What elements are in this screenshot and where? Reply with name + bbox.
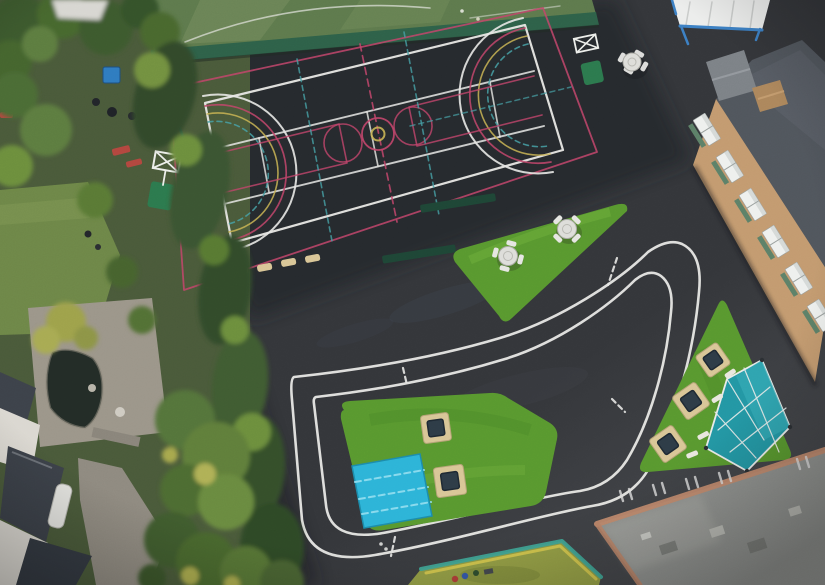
playground-scene — [0, 0, 825, 585]
vignette-overlay — [0, 0, 825, 585]
aerial-playground-photo: Aerial drone view of a school playground… — [0, 0, 825, 585]
